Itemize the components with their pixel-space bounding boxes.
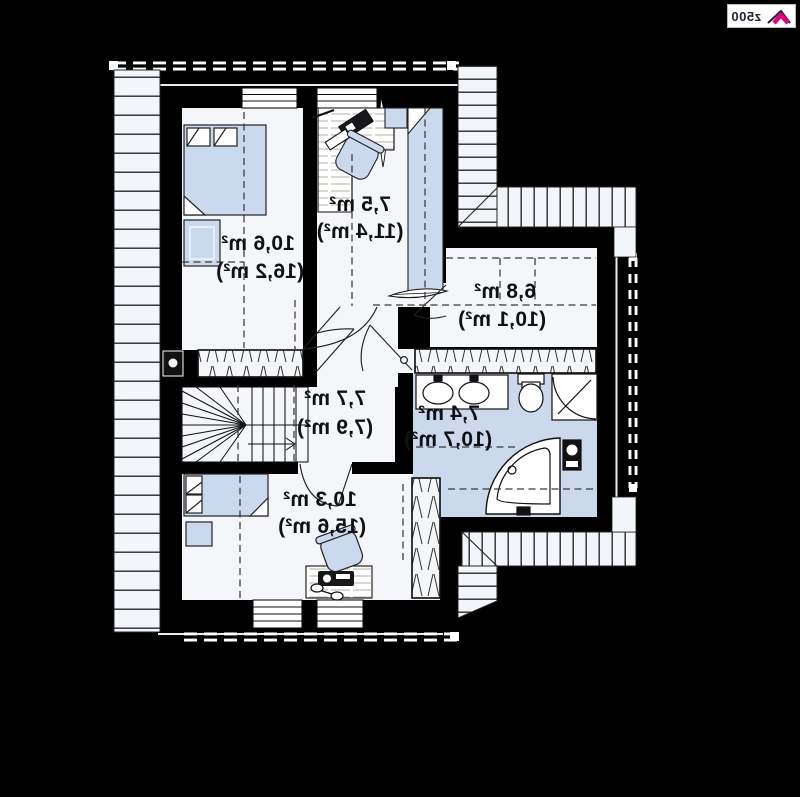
- label-room-upper-middle-gross: (11,4 m²): [317, 220, 404, 244]
- label-hall-gross: (7,9 m²): [297, 416, 373, 440]
- boiler: [563, 440, 581, 470]
- label-bedroom-lower-left-area: 10,3 m²: [283, 488, 357, 512]
- label-room-right-area: 6,8 m²: [474, 280, 536, 304]
- label-bedroom-lower-left-gross: (15,6 m²): [278, 515, 366, 539]
- logo-roof-icon: [766, 6, 792, 26]
- toilet: [518, 374, 544, 412]
- floor-plan-page: 10,6 m² (16,2 m²) 7,5 m² (11,4 m²) 6,8 m…: [0, 0, 800, 797]
- chimney: [163, 351, 183, 376]
- label-bathroom-gross: (10,7 m²): [404, 428, 492, 452]
- label-bathroom-area: 7,4 m²: [418, 402, 480, 426]
- label-bedroom-upper-left-gross: (16,2 m²): [216, 260, 304, 284]
- floor-door-gap-hall: [298, 462, 352, 474]
- logo: z500: [727, 4, 796, 28]
- floor-plan-drawing: [0, 0, 800, 797]
- label-hall-area: 7,7 m²: [304, 387, 366, 411]
- shower: [552, 374, 597, 420]
- label-bedroom-upper-left-area: 10,6 m²: [221, 232, 295, 256]
- label-room-upper-middle-area: 7,5 m²: [329, 193, 391, 217]
- label-room-right-gross: (10,1 m²): [458, 308, 546, 332]
- logo-text: z500: [731, 9, 761, 24]
